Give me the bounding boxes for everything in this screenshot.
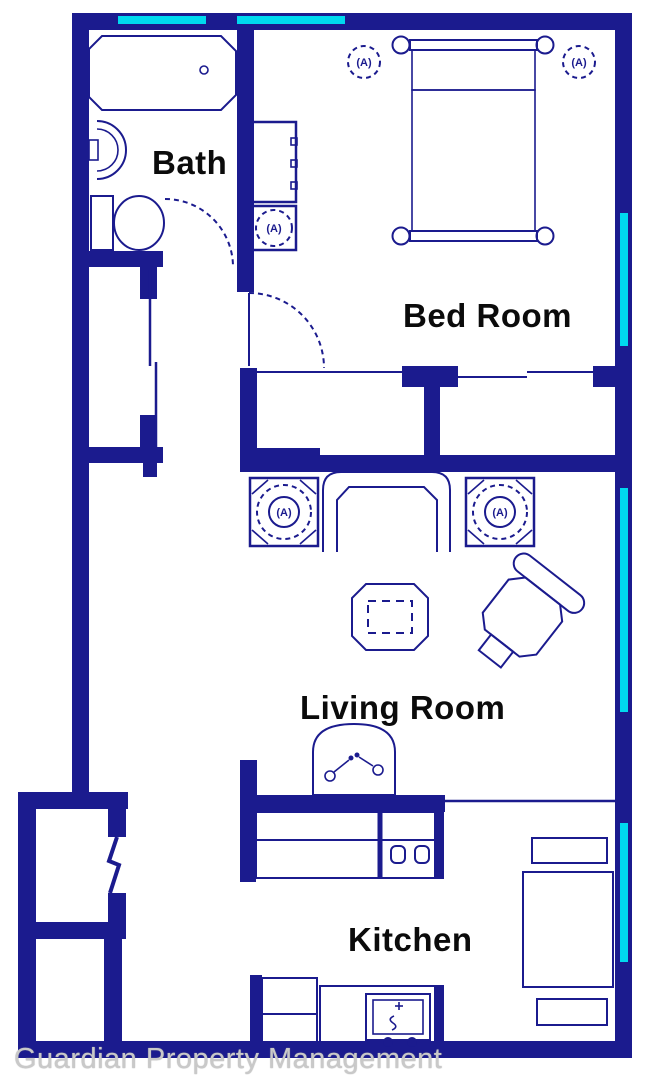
label-bath: Bath: [152, 144, 227, 181]
bed-footboard: [410, 231, 537, 241]
living-room-fixtures: (A) (A): [250, 472, 588, 809]
bedroom-fixtures: (A) (A) (A): [252, 37, 595, 251]
sink-basin-outer: [366, 994, 430, 1040]
window-right-living: [620, 488, 628, 712]
sofa-outer: [323, 472, 450, 552]
tv-antenna-left: [334, 760, 349, 772]
sink-basin-inner: [373, 1000, 423, 1034]
sofa: [323, 472, 450, 552]
floor-plan-drawing: (A) (A) (A) (A): [0, 0, 649, 1080]
tv-knob-left: [325, 771, 335, 781]
wall-closet-bottom: [89, 447, 163, 463]
window-top-1: [118, 16, 206, 24]
coffee-table-inset: [368, 601, 412, 633]
corner-line: [252, 480, 268, 494]
bath-sink-faucet: [89, 140, 98, 160]
stove-burner-2: [415, 846, 429, 863]
toilet-tank: [91, 196, 113, 250]
bedroom-door-arc: [249, 293, 324, 368]
armchair: [457, 549, 588, 684]
wall-bedroom-living-divider: [240, 455, 632, 472]
label-bed-room: Bed Room: [403, 297, 572, 334]
bed-post-br: [537, 228, 554, 245]
window-right-kitchen: [620, 823, 628, 962]
wall-kitchen-left-stub: [240, 810, 256, 882]
window-right-bedroom: [620, 213, 628, 346]
corner-line: [468, 480, 484, 494]
corner-line: [468, 530, 484, 544]
bed-pillow: [412, 50, 535, 90]
tv-antenna-dot-right: [355, 753, 360, 758]
lamp-text: (A): [492, 507, 508, 519]
end-table-lamp-right: (A): [466, 478, 534, 546]
bed-post-bl: [393, 228, 410, 245]
bed-post-tr: [537, 37, 554, 54]
sink-drain-curve: [390, 1016, 396, 1030]
tv-antenna-right: [359, 757, 373, 766]
dining-chair-top: [532, 838, 607, 863]
armchair-back: [510, 549, 589, 616]
dining-table: [523, 872, 613, 987]
window-top-2: [237, 16, 345, 24]
bath-sink-inner: [97, 129, 118, 171]
dresser: [252, 122, 296, 202]
fixture-marker-left: (A): [348, 46, 380, 78]
tv-body: [313, 724, 395, 795]
stove-burner-1: [391, 846, 405, 863]
tv-knob-right: [373, 765, 383, 775]
wall-entry-divider: [18, 922, 126, 939]
dining-chair-bottom: [537, 999, 607, 1025]
bed-mattress: [412, 90, 535, 231]
bed-post-tl: [393, 37, 410, 54]
kitchen-counter-top: [256, 812, 443, 878]
interior-walls: [18, 30, 632, 1058]
wall-closet-stub-top: [140, 267, 157, 299]
coffee-table: [352, 584, 428, 650]
floor-plan-page: (A) (A) (A) (A): [0, 0, 649, 1080]
tv-antenna-dot-left: [349, 756, 354, 761]
counter-outline: [256, 812, 443, 878]
room-labels: Bath Bed Room Living Room Kitchen: [152, 144, 572, 958]
nightstand-lamp: (A): [252, 206, 296, 250]
coffee-table-top: [352, 584, 428, 650]
sofa-seat: [337, 487, 437, 552]
wall-bath-bottom: [89, 251, 163, 267]
wall-storage-right: [104, 937, 122, 1041]
counter-left-cap: [250, 975, 262, 1045]
kitchen-sink-unit: [320, 986, 443, 1050]
marker-text: (A): [356, 57, 372, 69]
label-living-room: Living Room: [300, 689, 505, 726]
lamp-text: (A): [266, 223, 282, 235]
sink-end-cap: [434, 986, 443, 1050]
marker-text: (A): [571, 57, 587, 69]
toilet-bowl: [114, 196, 164, 250]
bed-headboard: [410, 40, 537, 50]
wall-bedcloset-stub: [424, 387, 440, 457]
lamp-text: (A): [276, 507, 292, 519]
bathroom-fixtures: [89, 36, 236, 250]
corner-line: [252, 530, 268, 544]
wall-bedcloset-column-mid: [402, 366, 458, 387]
armchair-front: [479, 634, 513, 667]
wall-entry-right-upper: [108, 807, 126, 837]
dining-set: [523, 838, 613, 1025]
bathtub: [89, 36, 236, 110]
end-table-lamp-left: (A): [250, 478, 318, 546]
wall-closet-stub-bottom: [140, 415, 157, 447]
wall-closet-corner-stub: [143, 463, 157, 477]
counter-outline: [262, 978, 317, 1042]
entry-zigzag-door: [109, 837, 119, 893]
wall-tv-stub-up: [240, 760, 257, 800]
kitchen-counter-bottom: [250, 975, 317, 1045]
bathtub-drain: [200, 66, 208, 74]
armchair-seat: [475, 570, 569, 664]
bath-door-arc: [165, 199, 233, 267]
wall-left: [72, 13, 89, 808]
wall-bedcloset-column-right: [593, 366, 615, 387]
fixture-marker-right: (A): [563, 46, 595, 78]
watermark-text: Guardian Property Management: [14, 1043, 442, 1075]
label-kitchen: Kitchen: [348, 921, 473, 958]
counter-end-cap: [434, 812, 443, 878]
